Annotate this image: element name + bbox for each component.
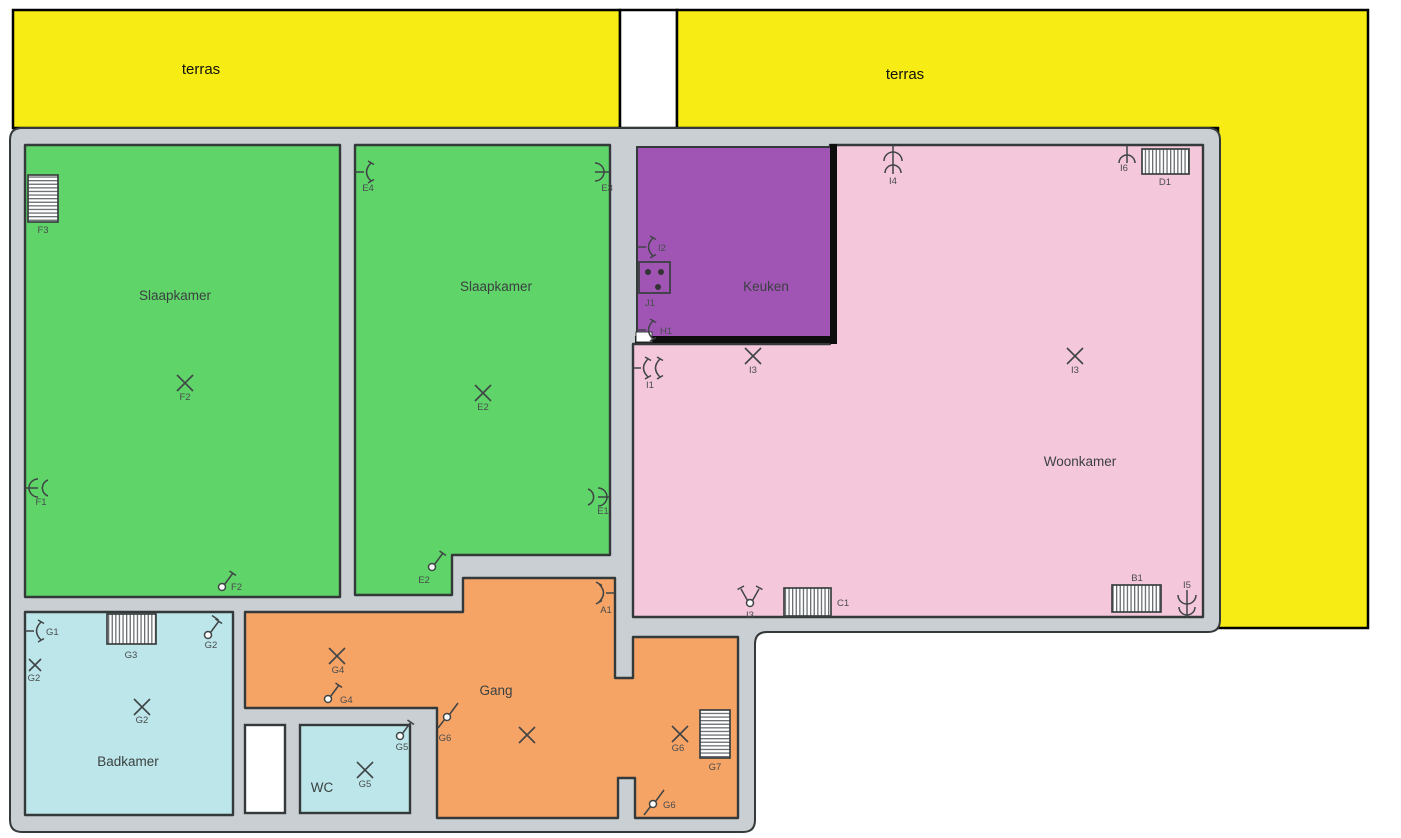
label-b1: B1 <box>1131 573 1143 584</box>
label-a1: A1 <box>600 605 612 616</box>
floorplan-svg: terras terras <box>0 0 1401 838</box>
shaft-void <box>245 725 285 813</box>
keuken-label: Keuken <box>743 279 789 294</box>
label-e1: E1 <box>597 506 609 517</box>
terrace-gap <box>620 10 677 128</box>
label-g2-small: G2 <box>28 673 41 684</box>
label-f3: F3 <box>37 225 48 236</box>
radiator-g3 <box>107 614 156 644</box>
terrace-left: terras <box>13 10 620 128</box>
label-g6-switch-mid: G6 <box>439 733 452 744</box>
label-g2-center: G2 <box>136 715 149 726</box>
label-i6: I6 <box>1120 163 1128 174</box>
keuken-wall-bottom <box>635 336 837 343</box>
label-e2-switch: E2 <box>418 575 430 586</box>
label-g5-ceiling: G5 <box>359 779 372 790</box>
label-g4-switch: G4 <box>340 695 353 706</box>
radiator-c1 <box>784 588 831 616</box>
gang-label: Gang <box>479 683 512 698</box>
slaapkamer2-label: Slaapkamer <box>460 279 533 294</box>
label-e2-ceiling: E2 <box>477 402 489 413</box>
label-f2-switch: F2 <box>231 582 242 593</box>
label-i1: I1 <box>646 380 654 391</box>
label-f2-ceiling: F2 <box>179 392 190 403</box>
label-g7: G7 <box>709 762 722 773</box>
label-i5: I5 <box>1183 580 1191 591</box>
radiator-f3 <box>28 175 58 222</box>
label-g4-ceiling: G4 <box>332 665 345 676</box>
label-g5-switch: G5 <box>396 742 409 753</box>
label-j1: J1 <box>645 298 655 309</box>
radiator-d1 <box>1142 149 1189 174</box>
room-slaapkamer-1 <box>25 145 340 597</box>
woonkamer-label: Woonkamer <box>1044 454 1117 469</box>
terrace-left-label: terras <box>182 61 220 78</box>
label-g3: G3 <box>125 650 138 661</box>
label-f1: F1 <box>35 497 46 508</box>
terrace-left-area <box>13 10 620 128</box>
label-g2-dimmer: G2 <box>205 640 218 651</box>
label-i3-switch: I3 <box>746 610 754 621</box>
wc-floor <box>300 725 410 813</box>
floorplan: terras terras <box>0 0 1401 838</box>
label-i3-left: I3 <box>749 365 757 376</box>
slaapkamer1-floor <box>25 145 340 597</box>
room-slaapkamer-2 <box>355 145 610 595</box>
terrace-right-label: terras <box>886 66 924 83</box>
wc-label: WC <box>311 780 334 795</box>
label-c1: C1 <box>837 598 849 609</box>
radiator-b1 <box>1112 585 1161 612</box>
label-h1: H1 <box>660 326 672 337</box>
label-e4: E4 <box>362 183 374 194</box>
label-i4: I4 <box>889 176 897 187</box>
label-d1: D1 <box>1159 177 1171 188</box>
terrace-divider <box>620 10 677 128</box>
slaapkamer2-floor <box>355 145 610 595</box>
label-g6-switch-bottom: G6 <box>663 800 676 811</box>
label-i3-right: I3 <box>1071 365 1079 376</box>
slaapkamer1-label: Slaapkamer <box>139 288 212 303</box>
keuken-floor <box>637 147 833 339</box>
label-e3: E3 <box>601 183 613 194</box>
label-i2: I2 <box>658 243 666 254</box>
radiator-g7 <box>700 710 730 758</box>
keuken-wall-right <box>830 144 837 344</box>
badkamer-label: Badkamer <box>97 754 159 769</box>
label-g1: G1 <box>46 627 59 638</box>
label-g6-ceiling: G6 <box>672 743 685 754</box>
room-wc <box>300 725 410 813</box>
